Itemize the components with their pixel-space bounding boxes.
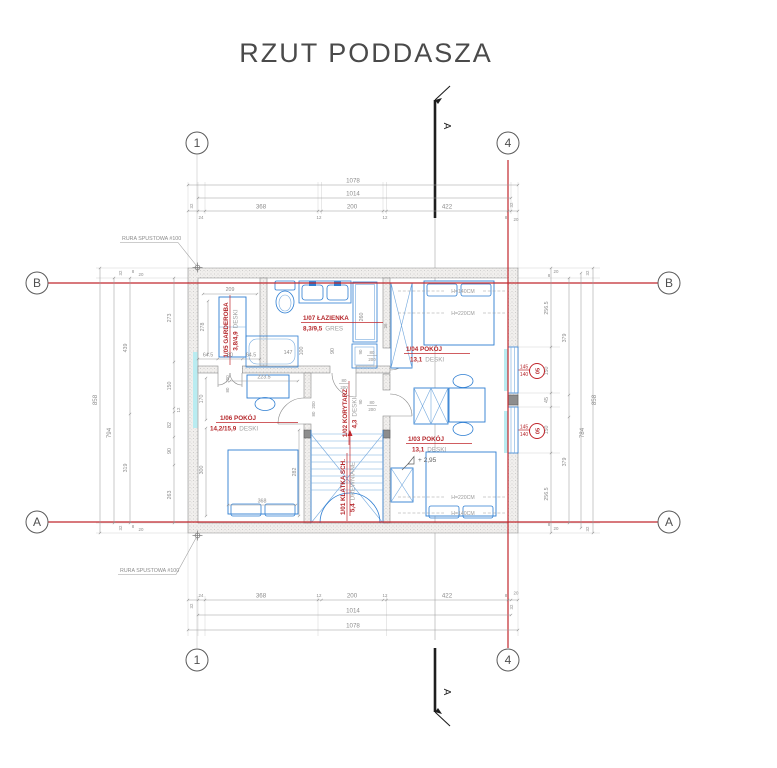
svg-text:20: 20 <box>514 217 519 222</box>
svg-text:32: 32 <box>118 270 123 275</box>
svg-text:12: 12 <box>317 215 322 220</box>
svg-text:32: 32 <box>118 525 123 530</box>
wardrobe-room04 <box>391 283 412 368</box>
svg-text:379: 379 <box>562 458 568 467</box>
svg-text:8: 8 <box>548 273 551 278</box>
wall-garderoba-right <box>260 278 267 366</box>
svg-text:8: 8 <box>132 269 135 274</box>
svg-text:A: A <box>441 123 452 130</box>
svg-text:300: 300 <box>199 466 205 475</box>
svg-text:1/05 GARDEROBA: 1/05 GARDEROBA <box>223 302 230 358</box>
grid-marker-1-bottom: 1 <box>194 653 201 667</box>
svg-text:32: 32 <box>585 270 590 275</box>
door-size-room03: 80 200 90 <box>358 399 377 412</box>
svg-text:90: 90 <box>330 348 336 354</box>
sink <box>302 285 323 300</box>
svg-text:8: 8 <box>548 522 551 527</box>
svg-text:26: 26 <box>383 323 388 328</box>
svg-text:140: 140 <box>520 432 529 438</box>
sink-counter <box>299 281 351 303</box>
svg-text:1/02 KORYTARZ: 1/02 KORYTARZ <box>342 389 349 437</box>
svg-text:32: 32 <box>509 202 514 207</box>
dimensions-top: 1078 1014 32 24 368 12 200 12 422 8 20 3… <box>188 178 519 223</box>
svg-text:45: 45 <box>544 397 550 403</box>
svg-text:319: 319 <box>123 464 129 473</box>
svg-text:140: 140 <box>520 372 529 378</box>
svg-text:32: 32 <box>189 603 194 608</box>
chair <box>453 375 473 388</box>
height-line-label: H=140CM <box>451 511 475 517</box>
washing-machine <box>352 344 377 368</box>
tap-icon <box>309 282 316 287</box>
wall-v-left-b <box>304 424 311 523</box>
svg-text:80: 80 <box>225 387 230 392</box>
door-garderoba <box>218 373 242 387</box>
room-label-bathroom: 1/07 ŁAZIENKA 8,3/9,5GRES <box>301 315 383 333</box>
svg-text:1/07 ŁAZIENKA: 1/07 ŁAZIENKA <box>303 315 349 322</box>
svg-text:422: 422 <box>442 593 453 600</box>
grid-marker-4-bottom: 4 <box>505 653 512 667</box>
svg-text:200: 200 <box>347 593 358 600</box>
wardrobe-middle <box>414 388 448 424</box>
svg-text:282: 282 <box>292 468 298 477</box>
floor-plan-svg: RZUT PODDASZA <box>0 0 777 768</box>
svg-text:13,1DESKI: 13,1DESKI <box>410 357 444 364</box>
room-label-stairs: 1/01 KLATKA SCH. 5,4DREWNIANE <box>340 453 357 521</box>
window-marker-1: 145 140 05 <box>519 364 545 379</box>
wall-end-block <box>304 430 311 438</box>
svg-text:1078: 1078 <box>346 623 360 630</box>
svg-text:858: 858 <box>92 394 99 405</box>
svg-text:200: 200 <box>368 357 376 362</box>
svg-text:12: 12 <box>176 407 181 412</box>
svg-text:273: 273 <box>167 314 173 323</box>
wall-h-right <box>356 366 390 373</box>
grid-marker-A-left: A <box>33 515 41 529</box>
svg-text:32: 32 <box>585 526 590 531</box>
door-room03 <box>390 394 412 416</box>
svg-text:32: 32 <box>189 203 194 208</box>
height-line-label: H=220CM <box>451 495 475 501</box>
svg-text:145: 145 <box>520 365 529 371</box>
bathroom-cabinet <box>353 282 377 342</box>
svg-text:200: 200 <box>340 385 348 390</box>
svg-text:20: 20 <box>514 591 519 596</box>
dimensions-bottom: 24 368 12 200 12 422 8 20 32 32 1014 107… <box>188 591 519 631</box>
svg-text:278: 278 <box>200 323 206 332</box>
svg-text:223.5: 223.5 <box>257 375 270 381</box>
svg-text:80: 80 <box>342 378 347 383</box>
window-2 <box>504 407 518 453</box>
svg-text:1/03 POKÓJ: 1/03 POKÓJ <box>408 434 445 443</box>
door-size-garderoba: 80 200 <box>225 375 230 393</box>
svg-text:368: 368 <box>256 593 267 600</box>
svg-text:05: 05 <box>536 368 542 374</box>
svg-text:422: 422 <box>442 204 453 211</box>
svg-text:5,4DREWNIANE: 5,4DREWNIANE <box>350 462 357 512</box>
svg-text:8: 8 <box>132 524 135 529</box>
wall-end-block <box>383 430 390 438</box>
height-line-label: H=140CM <box>451 289 475 295</box>
svg-text:150: 150 <box>167 382 173 391</box>
svg-text:100: 100 <box>299 347 305 356</box>
window-pier <box>508 395 518 405</box>
svg-text:05: 05 <box>536 428 542 434</box>
svg-text:439: 439 <box>123 344 129 353</box>
tap-icon <box>334 282 341 287</box>
wall-v-right-a <box>383 278 390 348</box>
svg-text:8: 8 <box>505 593 508 598</box>
svg-text:256.5: 256.5 <box>544 301 550 314</box>
svg-text:263: 263 <box>167 491 173 500</box>
svg-text:80: 80 <box>370 400 375 405</box>
svg-text:1014: 1014 <box>346 191 360 198</box>
svg-text:20: 20 <box>139 272 144 277</box>
downpipe-leader-top: RURA SPUSTOWA #100 <box>120 236 196 265</box>
svg-text:200: 200 <box>368 407 376 412</box>
svg-text:260: 260 <box>359 313 365 322</box>
chair <box>255 398 275 411</box>
svg-text:147: 147 <box>284 350 293 356</box>
svg-text:200: 200 <box>225 375 230 383</box>
svg-text:14,2/15,9DESKI: 14,2/15,9DESKI <box>210 426 258 433</box>
svg-text:20: 20 <box>139 527 144 532</box>
svg-text:80: 80 <box>227 353 233 359</box>
svg-text:170: 170 <box>199 395 205 404</box>
section-mark-bottom: A <box>435 648 452 726</box>
svg-text:200: 200 <box>347 204 358 211</box>
room-label-room06: 1/06 POKÓJ 14,2/15,9DESKI <box>210 413 298 433</box>
grid-marker-1-top: 1 <box>194 136 201 150</box>
grid-marker-A-right: A <box>665 515 673 529</box>
grid-marker-4-top: 4 <box>505 136 512 150</box>
svg-text:90: 90 <box>358 399 363 404</box>
door-size-room04: 80 200 90 <box>358 349 377 362</box>
wall-v-left-a <box>304 373 311 398</box>
svg-text:858: 858 <box>591 394 598 405</box>
svg-text:1/06 POKÓJ: 1/06 POKÓJ <box>220 413 257 422</box>
svg-text:784: 784 <box>579 427 586 438</box>
svg-text:12: 12 <box>383 593 388 598</box>
left-wall-band <box>193 352 198 428</box>
svg-text:1078: 1078 <box>346 178 360 185</box>
grid-marker-B-left: B <box>33 276 41 290</box>
svg-text:20: 20 <box>554 269 559 274</box>
svg-text:24: 24 <box>199 215 204 220</box>
svg-text:379: 379 <box>562 334 568 343</box>
svg-text:8: 8 <box>505 215 508 220</box>
door-room06 <box>278 398 304 424</box>
svg-text:90: 90 <box>358 349 363 354</box>
drawing-sheet: RZUT PODDASZA <box>0 0 777 768</box>
svg-text:13,1DESKI: 13,1DESKI <box>412 447 446 454</box>
svg-text:1/01 KLATKA SCH.: 1/01 KLATKA SCH. <box>340 459 347 515</box>
toilet <box>275 281 295 313</box>
svg-text:A: A <box>441 689 452 696</box>
svg-text:+ 2,95: + 2,95 <box>418 457 437 464</box>
page-title: RZUT PODDASZA <box>239 38 493 68</box>
svg-text:RURA SPUSTOWA #100: RURA SPUSTOWA #100 <box>122 236 181 242</box>
svg-text:82: 82 <box>167 422 173 428</box>
svg-text:20: 20 <box>554 526 559 531</box>
svg-text:368: 368 <box>256 204 267 211</box>
room-label-room04: 1/04 POKÓJ 13,1DESKI <box>404 344 470 364</box>
door-size-bathroom: 80 200 <box>339 378 349 390</box>
height-line-label: H=220CM <box>451 311 475 317</box>
sink <box>327 285 348 300</box>
chair <box>453 423 473 436</box>
svg-text:12: 12 <box>383 215 388 220</box>
svg-text:256.5: 256.5 <box>544 487 550 500</box>
svg-text:368: 368 <box>258 499 267 505</box>
wall-h-left <box>198 366 218 373</box>
svg-text:1014: 1014 <box>346 608 360 615</box>
downpipe-leader-bottom: RURA SPUSTOWA #100 <box>118 538 196 575</box>
svg-text:794: 794 <box>106 427 113 438</box>
svg-text:8,3/9,5GRES: 8,3/9,5GRES <box>303 326 343 333</box>
room-label-room03: 1/03 POKÓJ 13,1DESKI <box>406 434 472 454</box>
grid-marker-B-right: B <box>665 276 673 290</box>
window-1 <box>504 347 518 393</box>
svg-text:209: 209 <box>226 287 235 293</box>
wall-v-right-b <box>383 374 390 390</box>
svg-text:80: 80 <box>370 350 375 355</box>
svg-text:RURA SPUSTOWA #100: RURA SPUSTOWA #100 <box>120 568 179 574</box>
svg-text:24: 24 <box>199 593 204 598</box>
desk-shared <box>449 375 485 436</box>
dimensions-right: 256.5 150 45 150 256.5 379 379 784 858 2… <box>519 268 599 533</box>
svg-text:200: 200 <box>311 401 316 409</box>
window-marker-2: 145 140 05 <box>519 424 545 439</box>
svg-text:1/04 POKÓJ: 1/04 POKÓJ <box>406 344 443 353</box>
svg-text:145: 145 <box>520 425 529 431</box>
svg-text:64.5: 64.5 <box>246 353 256 359</box>
svg-text:64.5: 64.5 <box>203 353 213 359</box>
door-size-room06: 80 200 <box>311 401 316 417</box>
svg-text:90: 90 <box>167 448 173 454</box>
svg-text:12: 12 <box>317 593 322 598</box>
dimensions-left: 858 794 439 319 273 150 12 82 90 263 32 … <box>92 268 181 533</box>
svg-text:80: 80 <box>311 411 316 416</box>
svg-text:32: 32 <box>509 604 514 609</box>
